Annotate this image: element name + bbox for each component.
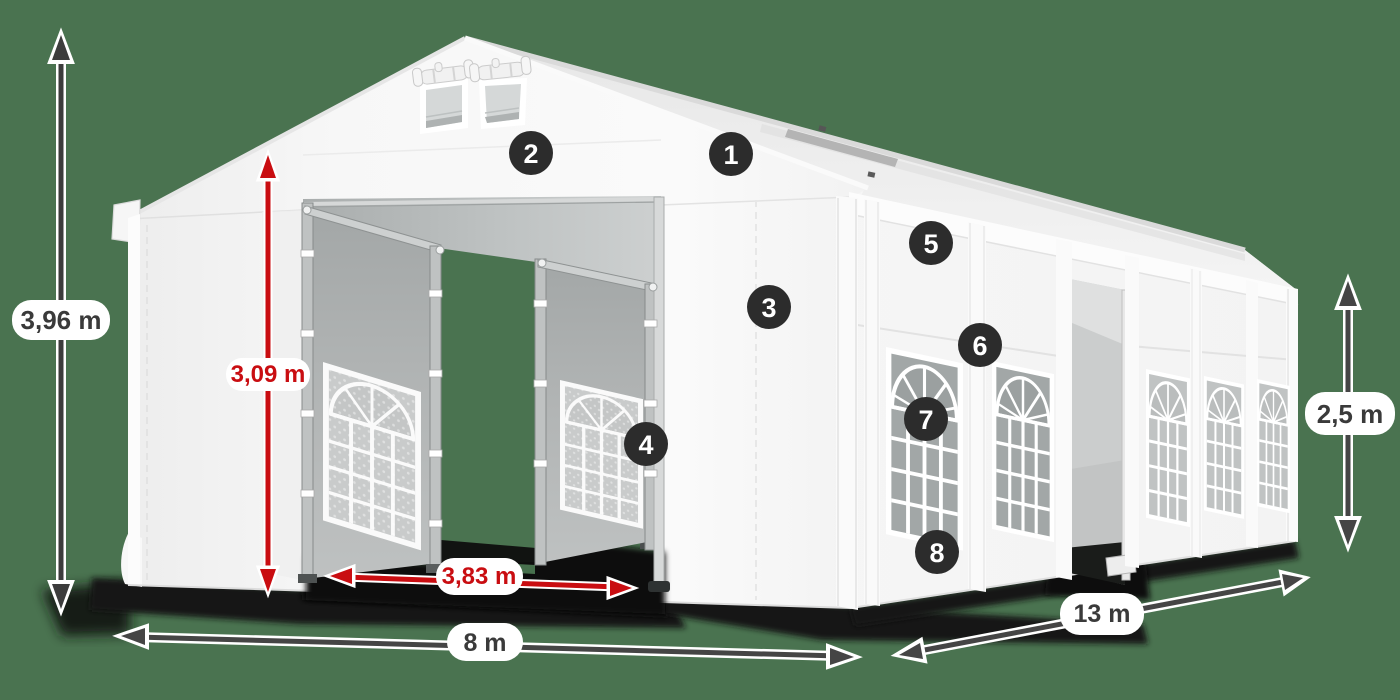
svg-text:5: 5 — [923, 229, 938, 259]
svg-text:3,96 m: 3,96 m — [21, 305, 102, 335]
svg-text:13 m: 13 m — [1074, 600, 1131, 628]
svg-text:2: 2 — [523, 139, 538, 169]
svg-text:8 m: 8 m — [463, 629, 506, 657]
svg-text:3,09 m: 3,09 m — [231, 361, 306, 388]
svg-text:3: 3 — [761, 293, 776, 323]
svg-text:3,83 m: 3,83 m — [442, 563, 517, 590]
svg-text:4: 4 — [638, 430, 653, 460]
svg-text:7: 7 — [918, 405, 933, 435]
svg-text:1: 1 — [723, 140, 738, 170]
svg-text:2,5 m: 2,5 m — [1317, 399, 1384, 429]
svg-text:6: 6 — [972, 331, 987, 361]
svg-text:8: 8 — [929, 538, 944, 568]
